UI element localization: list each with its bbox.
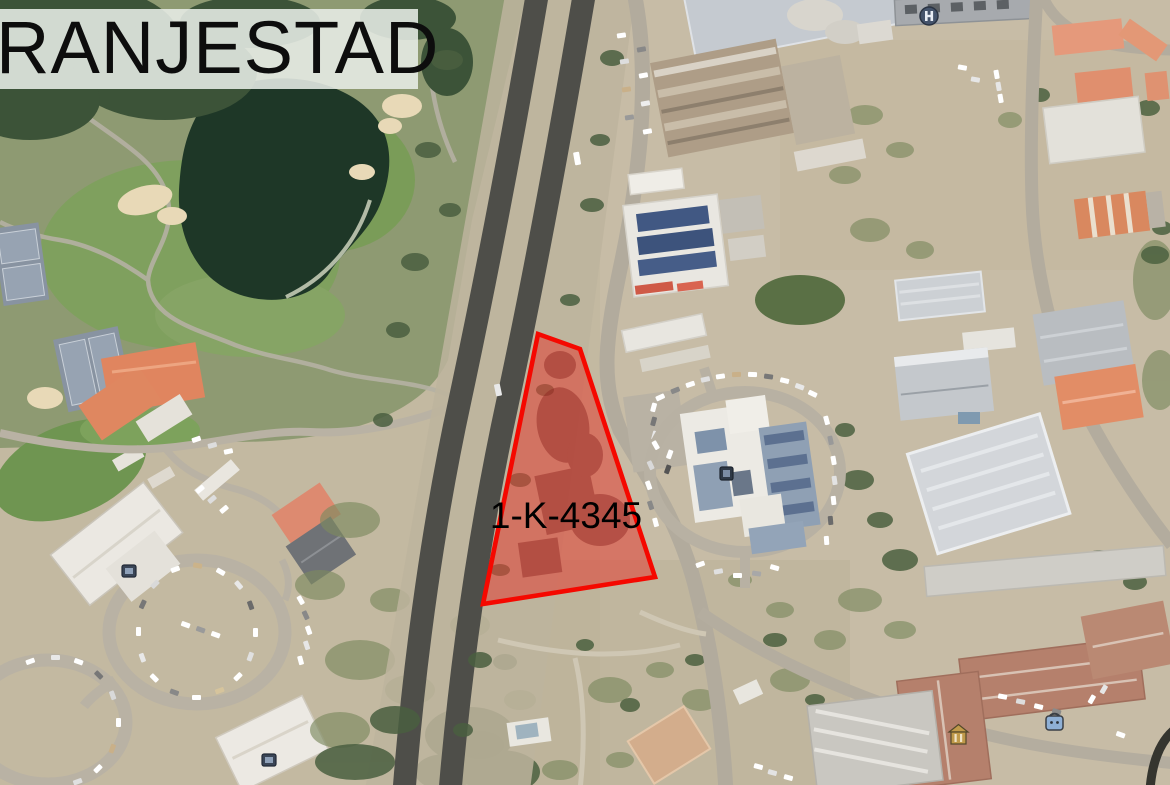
parcel-label: 1-K-4345 [490, 495, 642, 536]
building-marker-icon[interactable] [720, 467, 733, 480]
map-banner: RANJESTAD [0, 6, 439, 89]
banner-title: RANJESTAD [0, 6, 439, 89]
satellite-map: 1-K-4345 [0, 0, 1170, 785]
lodging-icon-2[interactable] [262, 754, 276, 766]
circle-h-icon[interactable] [920, 7, 938, 25]
satellite-map-canvas: 1-K-4345 [0, 0, 1170, 785]
shopping-bag-icon[interactable] [1046, 714, 1063, 730]
lodging-icon[interactable] [122, 565, 136, 577]
